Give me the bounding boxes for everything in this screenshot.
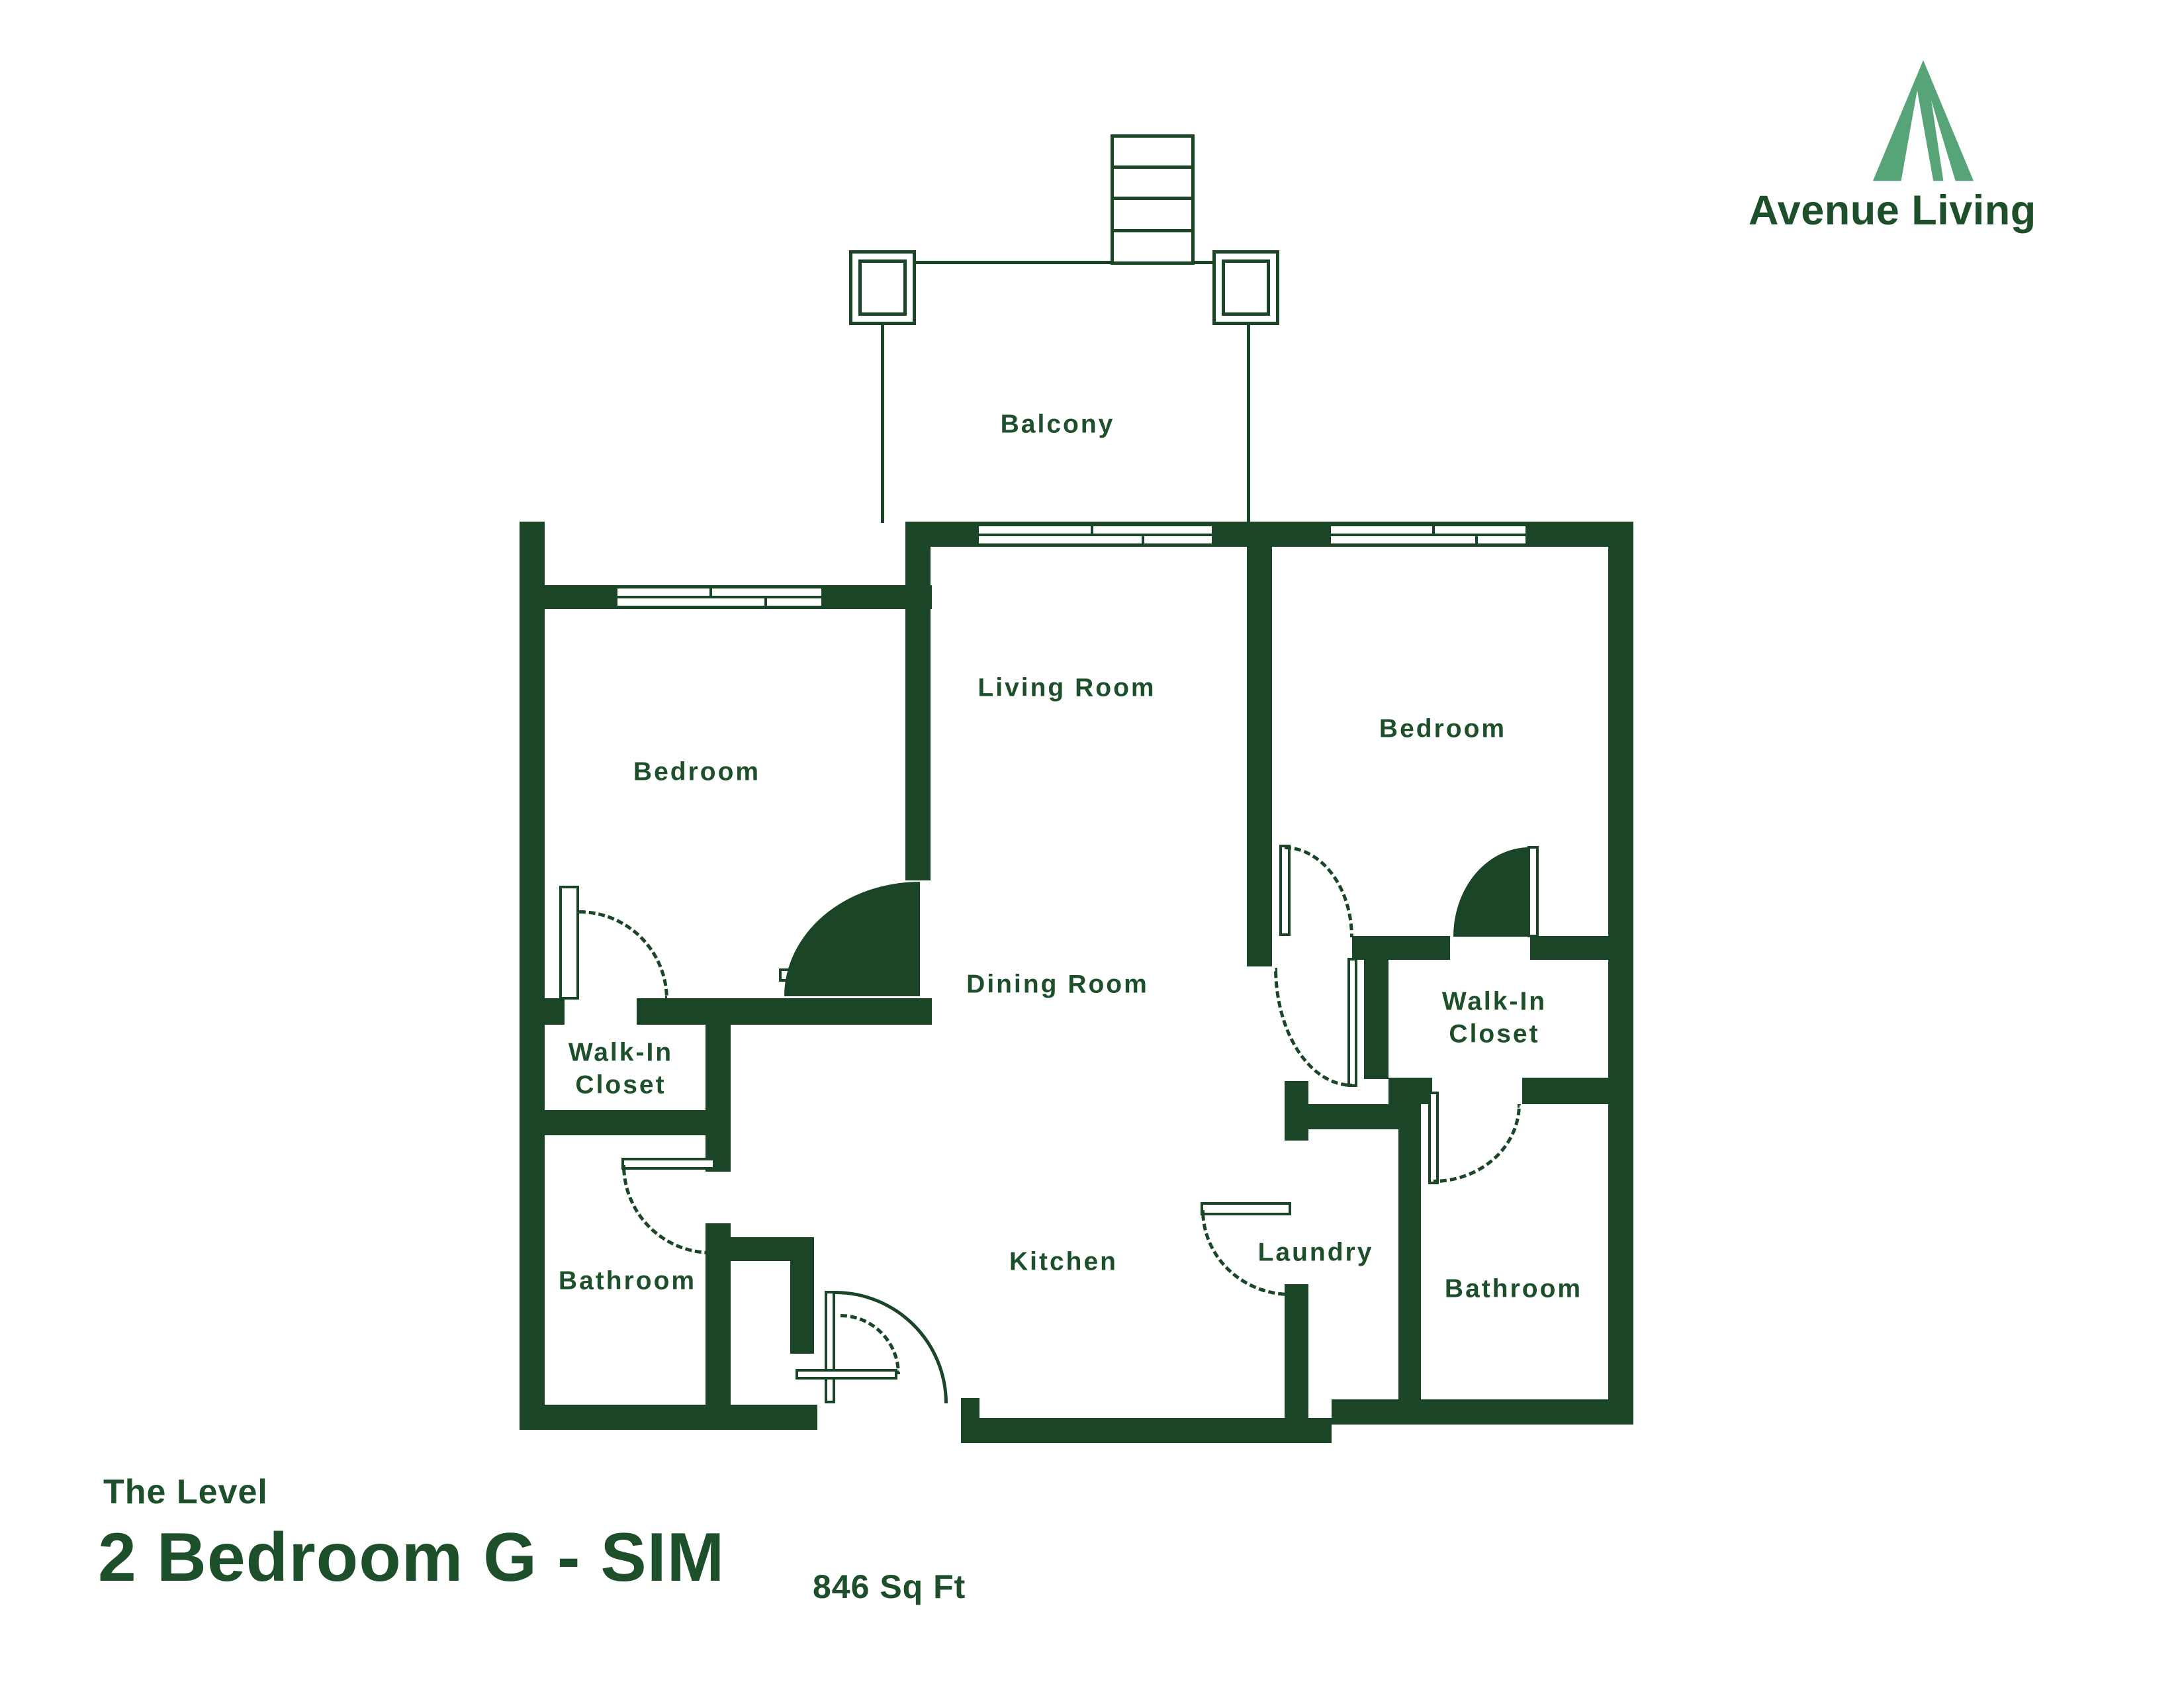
wall-entry-jamb [961,1398,979,1443]
window-divider [1475,535,1478,543]
stair-tread-line [1114,165,1191,169]
wall-outer-bottom-kitchen [961,1418,1332,1443]
room-label-living-room: Living Room [978,673,1156,705]
unit-title: 2 Bedroom G - SIM [98,1519,725,1597]
wall-bedroomR-bottom-right [1530,936,1608,960]
wall-entry-nook-right [790,1261,814,1354]
logo-wordmark: Avenue Living [1749,187,2036,234]
door-swing-arc-bedroomR-right [1453,847,1529,937]
wall-outer-left [520,522,545,1430]
wall-entry-nook-top [731,1237,814,1261]
window-bedroom-left [614,585,825,609]
wall-outer-right [1608,522,1633,1425]
door-swing-arc-closetL [579,910,668,1000]
window-mullion [617,596,821,598]
property-name: The Level [103,1472,268,1512]
door-swing-arc-bedroomL [784,882,920,996]
room-label-kitchen: Kitchen [1009,1246,1118,1279]
balcony-rail [881,325,884,523]
window-living-room [976,523,1215,547]
window-divider [1432,526,1435,535]
wall-closetR-bottom-left [1388,1078,1432,1104]
door-leaf-entry-vertical [825,1291,835,1403]
wall-bedroomL-bottom [637,998,932,1025]
door-swing-arc-bathroomR [1433,1104,1521,1183]
door-swing-arc-hall [1274,968,1352,1087]
room-label-walkin-closet-left: Walk-In Closet [569,1037,673,1102]
window-divider [764,597,767,606]
floor-plan-page: Avenue Living [0,0,2184,1688]
room-label-walkin-closet-right: Walk-In Closet [1442,986,1547,1051]
wall-outer-bottom-left [520,1405,817,1430]
room-label-bathroom-left: Bathroom [559,1266,696,1298]
wall-outer-bottom-right [1332,1399,1633,1425]
wall-laundry-top [1302,1104,1398,1129]
wall-bedroomR-bottom-mid [1352,936,1450,960]
balcony-rail [1247,325,1250,523]
room-label-dining-room: Dining Room [966,969,1149,1002]
unit-area: 846 Sq Ft [813,1568,966,1606]
wall-closetL-door-stub [545,998,565,1025]
wall-living-bedroomR-divider [1247,547,1272,966]
balcony-pillar-inner [1222,259,1270,316]
wall-closetL-right-upper [705,998,731,1172]
balcony-pillar-inner [858,259,907,316]
window-mullion [1331,534,1525,536]
room-label-laundry: Laundry [1258,1237,1374,1270]
window-divider [709,588,712,597]
window-divider [1142,535,1144,543]
window-mullion [979,534,1212,536]
room-label-bedroom-left: Bedroom [633,757,760,789]
window-divider [1091,526,1093,535]
door-leaf-closetL [559,886,579,1000]
stair-tread-line [1114,197,1191,200]
window-bedroom-right [1328,523,1529,547]
wall-laundry-bathR-divider [1398,1104,1421,1399]
room-label-bathroom-right: Bathroom [1445,1274,1582,1306]
balcony-stairs [1111,134,1195,265]
stair-tread-line [1114,229,1191,232]
wall-laundry-left-stub [1285,1081,1308,1141]
wall-laundry-left-lower [1285,1284,1308,1418]
door-swing-arc-bedroomR-left [1285,846,1353,937]
wall-closetR-bottom-right [1522,1078,1608,1104]
room-label-bedroom-right: Bedroom [1379,714,1506,746]
balcony-edge-line [916,261,1112,264]
wall-bedroomL-living-divider [905,547,931,880]
avenue-living-logo-icon [1873,58,1974,183]
wall-closetL-bottom [545,1110,707,1135]
room-label-balcony: Balcony [1001,409,1115,442]
door-swing-arc-bathroomL [622,1165,711,1254]
wall-closetR-left [1364,960,1388,1079]
